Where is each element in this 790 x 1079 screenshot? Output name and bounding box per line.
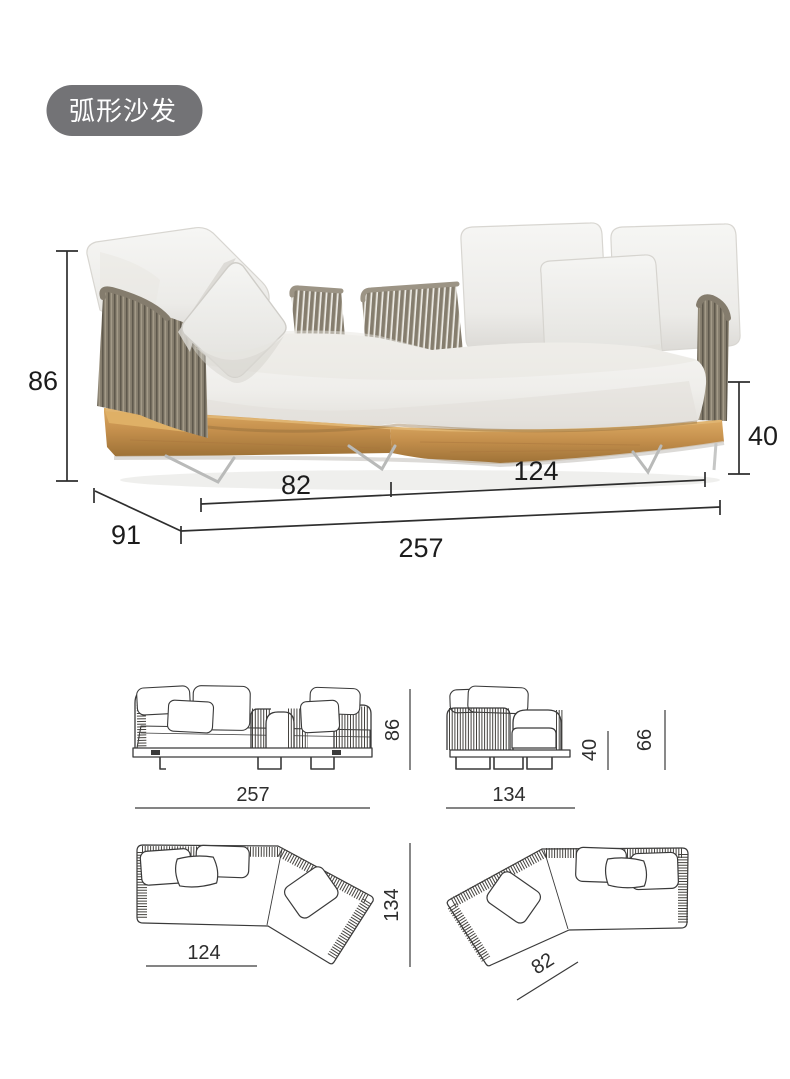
svg-text:86: 86 [382, 719, 404, 741]
svg-text:66: 66 [634, 729, 656, 751]
svg-text:134: 134 [381, 888, 403, 921]
svg-text:124: 124 [513, 456, 558, 486]
svg-text:134: 134 [492, 784, 525, 806]
svg-text:91: 91 [111, 520, 141, 550]
svg-text:124: 124 [187, 942, 220, 964]
svg-text:40: 40 [579, 739, 601, 761]
svg-text:40: 40 [748, 421, 778, 451]
svg-text:82: 82 [281, 470, 311, 500]
svg-text:弧形沙发: 弧形沙发 [69, 96, 177, 126]
svg-text:86: 86 [28, 366, 58, 396]
svg-text:257: 257 [236, 784, 269, 806]
svg-text:257: 257 [398, 533, 443, 563]
